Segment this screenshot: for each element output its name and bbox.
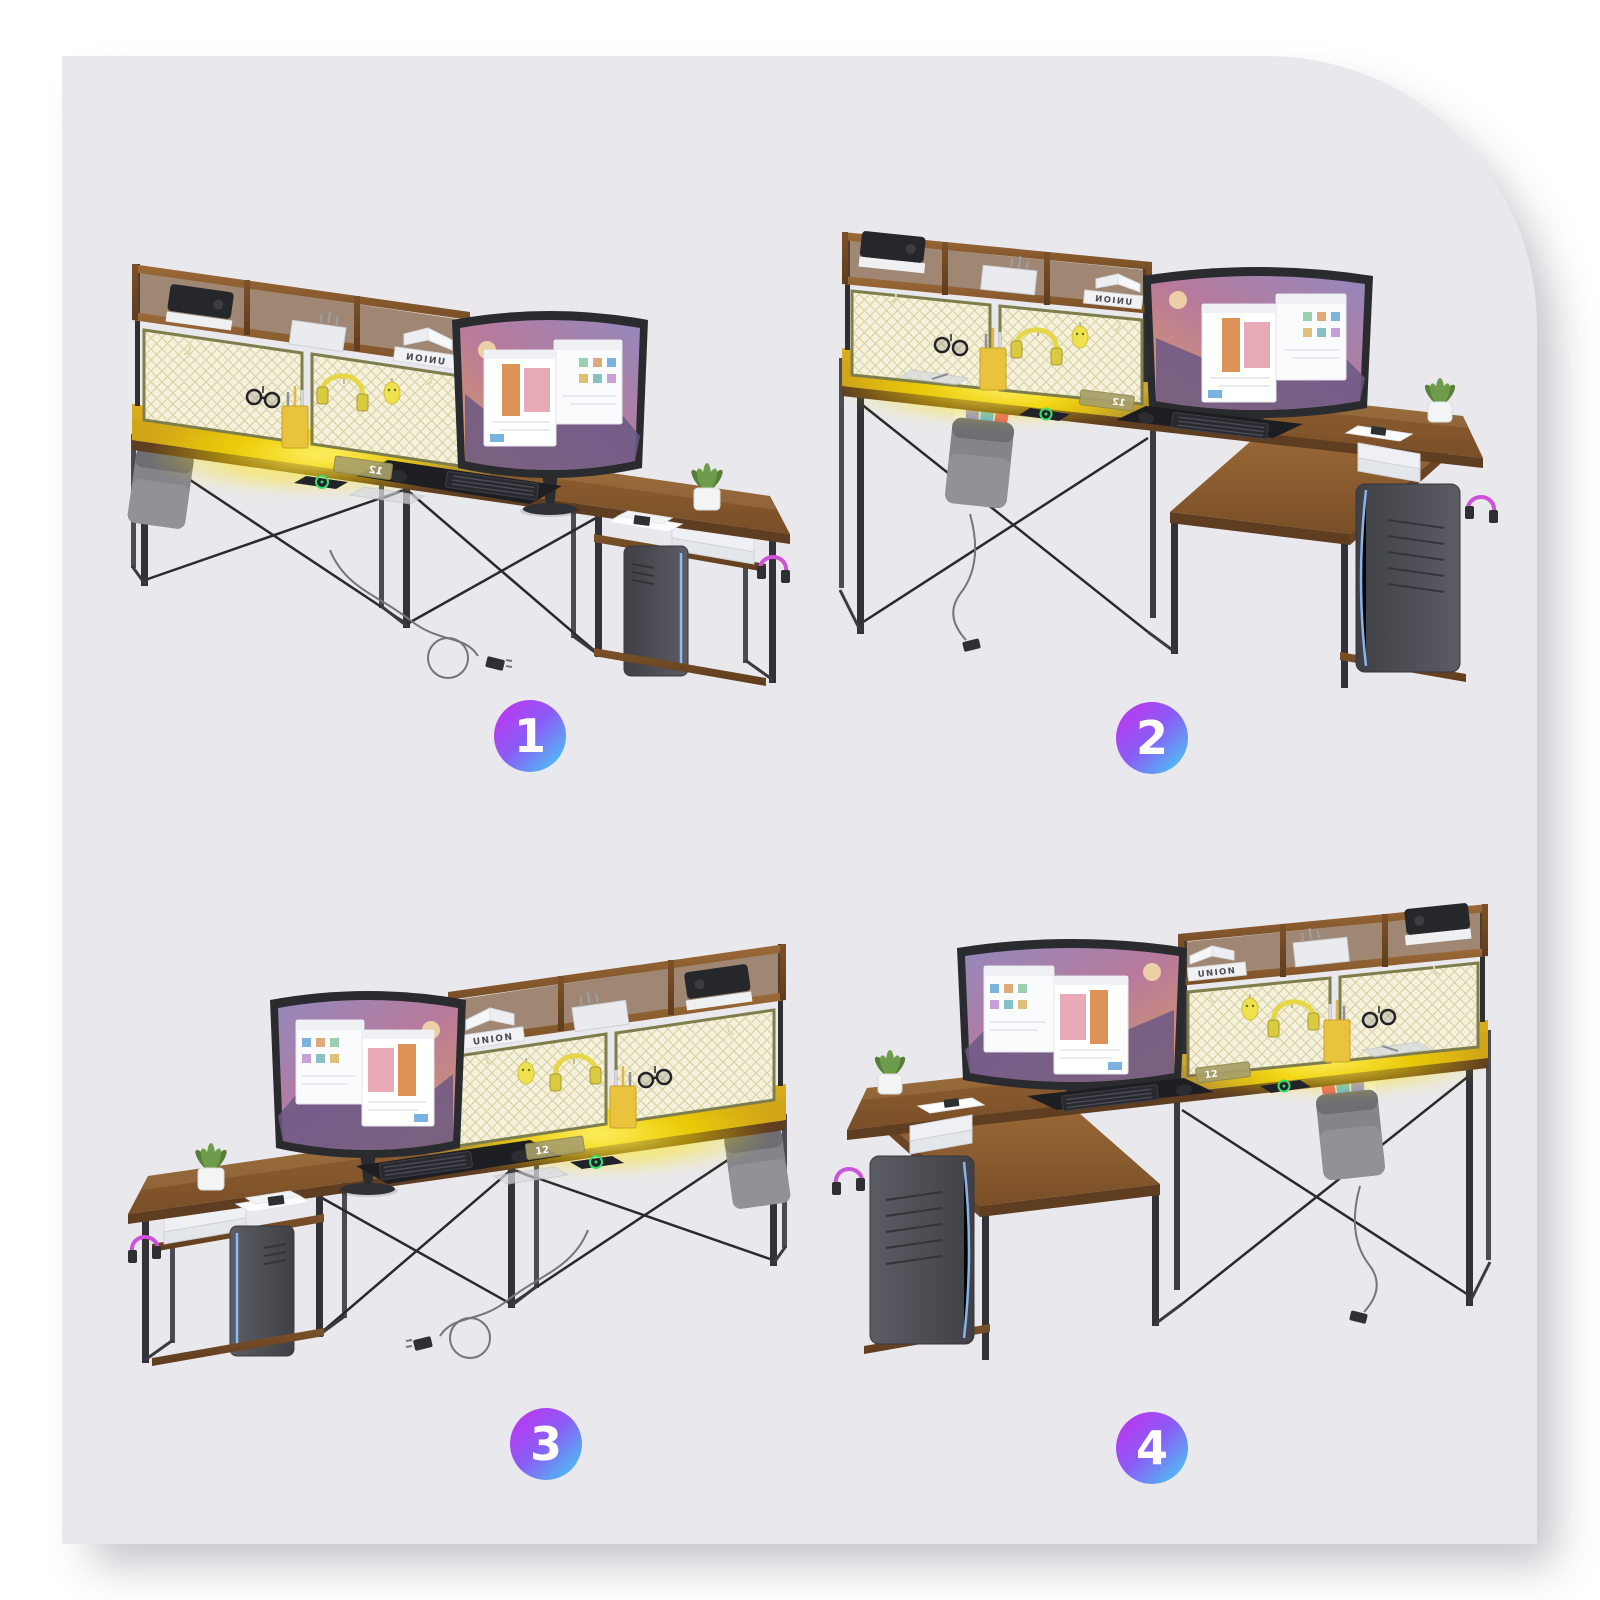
product-image: UNION xyxy=(0,0,1600,1600)
desk-configuration-1 xyxy=(120,228,800,698)
desk-configuration-4 xyxy=(822,900,1502,1370)
config-number-badge-3: 3 xyxy=(510,1408,582,1480)
config-number-badge-4: 4 xyxy=(1116,1412,1188,1484)
config-number-badge-1: 1 xyxy=(494,700,566,772)
desk-configuration-3 xyxy=(118,908,798,1378)
desk-configuration-2 xyxy=(828,228,1508,698)
config-number-badge-2: 2 xyxy=(1116,702,1188,774)
